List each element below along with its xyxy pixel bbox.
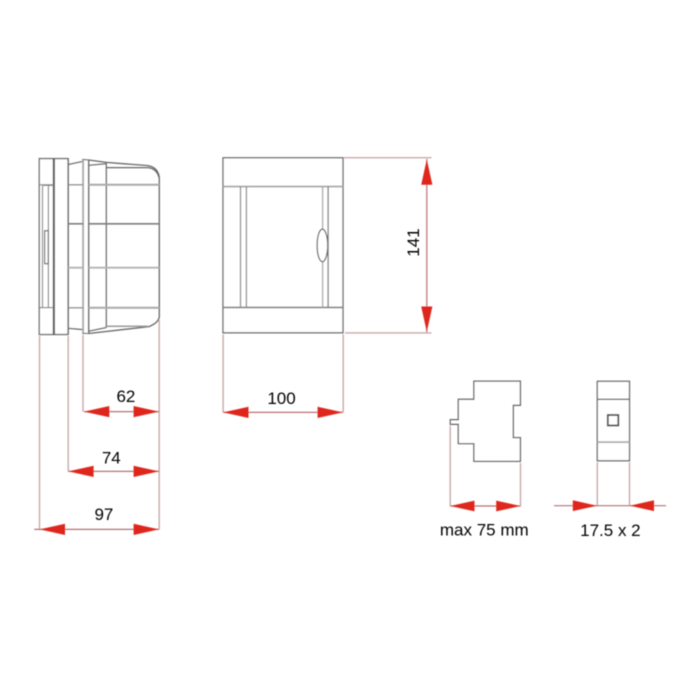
svg-text:141: 141	[404, 228, 423, 256]
svg-text:17.5 x 2: 17.5 x 2	[580, 521, 641, 540]
svg-text:62: 62	[116, 387, 135, 406]
svg-text:74: 74	[102, 448, 121, 467]
svg-text:97: 97	[94, 505, 113, 524]
svg-text:max 75 mm: max 75 mm	[440, 521, 529, 540]
svg-text:100: 100	[267, 389, 295, 408]
